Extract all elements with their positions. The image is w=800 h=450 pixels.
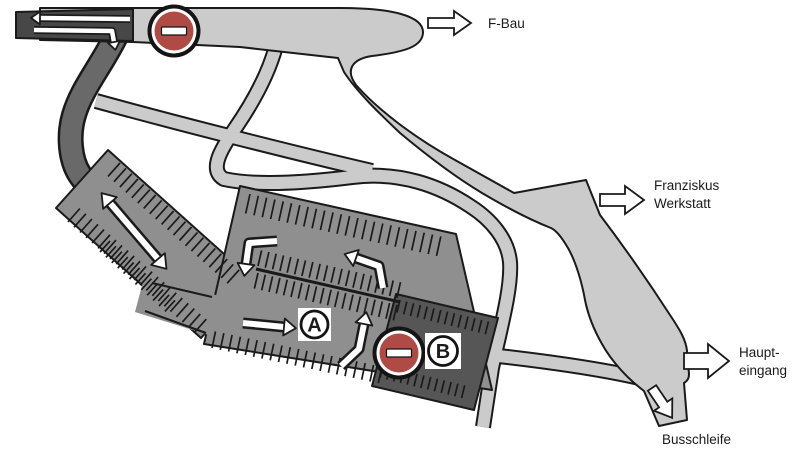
franziskus-arrow-icon	[600, 186, 644, 214]
no-entry-sign-south	[373, 327, 426, 380]
parking-area-a-label: A	[307, 315, 321, 337]
map-canvas: A B F-Bau Franziskus Werkstatt Haupt- ei…	[0, 0, 800, 450]
parking-area-a-badge: A	[298, 308, 331, 341]
haupteingang-label-line1: Haupt-	[739, 345, 780, 360]
parking-area-b-badge: B	[425, 333, 461, 369]
busschleife-label: Busschleife	[662, 432, 731, 447]
f-bau-arrow-icon	[428, 11, 471, 35]
f-bau-label: F-Bau	[488, 16, 525, 31]
no-entry-sign-north	[148, 5, 201, 58]
franziskus-label-line1: Franziskus	[654, 178, 720, 193]
site-map: A B F-Bau Franziskus Werkstatt Haupt- ei…	[0, 0, 800, 450]
parking-area-b-label: B	[436, 341, 450, 363]
franziskus-label-line2: Werkstatt	[654, 196, 711, 211]
haupteingang-label-line2: eingang	[739, 363, 787, 378]
haupteingang-arrow-icon	[684, 344, 729, 378]
